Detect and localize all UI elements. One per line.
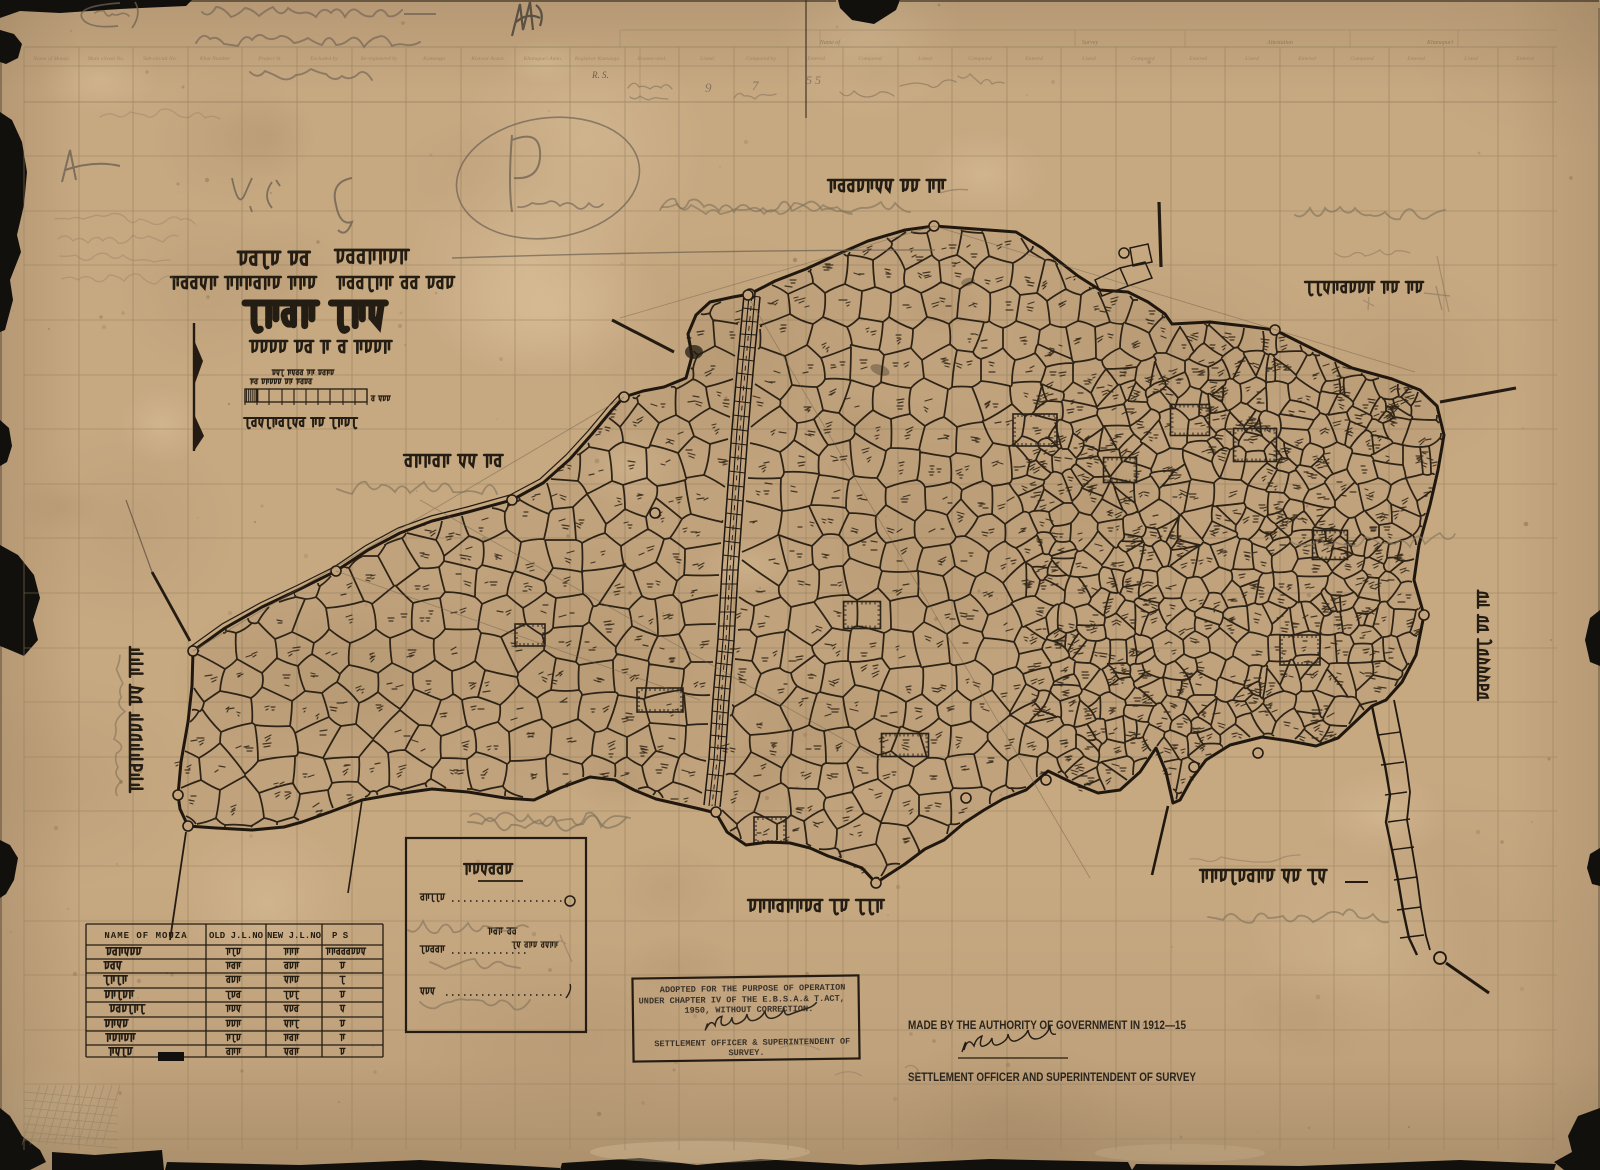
svg-text:Re-registered by: Re-registered by [360,56,398,62]
svg-text:NAME OF MOUZA: NAME OF MOUZA [104,931,187,941]
svg-text:Khanapuri: Khanapuri [1426,40,1453,46]
svg-text:Listed: Listed [1463,56,1478,62]
svg-text:Khanapuri Amin.: Khanapuri Amin. [523,56,563,62]
svg-text:SETTLEMENT OFFICER AND SUPERIN: SETTLEMENT OFFICER AND SUPERINTENDENT OF… [908,1072,1196,1084]
svg-text:Entered: Entered [1297,56,1316,62]
svg-text:Entered: Entered [1188,56,1207,62]
svg-text:SURVEY.: SURVEY. [728,1048,764,1059]
svg-text:Compared by: Compared by [746,56,777,62]
svg-text:P S: P S [332,931,349,941]
svg-text:Compared: Compared [1350,56,1374,62]
svg-text:Attestation: Attestation [1266,40,1293,46]
svg-text:Excluded by: Excluded by [309,56,338,62]
svg-text:OLD J.L.NO: OLD J.L.NO [209,931,264,941]
svg-text:Khat Number: Khat Number [199,56,231,62]
svg-text:Compared: Compared [1131,56,1155,62]
svg-text:Kistwar Assist.: Kistwar Assist. [470,56,504,62]
svg-text:Listed: Listed [699,56,714,62]
svg-text:Sub-circuit No.: Sub-circuit No. [143,56,177,62]
svg-text:Enumerated.: Enumerated. [637,56,667,62]
svg-text:Kamanga: Kamanga [422,56,445,62]
svg-text:Name of: Name of [819,39,841,46]
svg-text:Registrar Kamanga: Registrar Kamanga [574,56,619,62]
svg-text:9: 9 [705,80,712,95]
svg-text:Entered: Entered [1024,56,1043,62]
svg-text:NEW J.L.NO: NEW J.L.NO [267,931,322,941]
svg-text:7: 7 [752,78,759,93]
svg-text:5 5: 5 5 [806,73,821,87]
svg-text:Main circuit No.: Main circuit No. [87,56,125,62]
svg-text:Listed: Listed [917,56,932,62]
svg-text:R. S.: R. S. [591,70,609,80]
svg-text:Entered: Entered [1406,56,1425,62]
svg-text:Project St.: Project St. [257,56,281,62]
svg-text:Survey: Survey [1082,40,1099,46]
svg-text:Listed: Listed [1081,56,1096,62]
svg-text:Compared: Compared [858,56,882,62]
svg-text:MADE BY THE AUTHORITY OF GOVER: MADE BY THE AUTHORITY OF GOVERNMENT IN 1… [908,1018,1186,1032]
svg-text:Listed: Listed [1244,56,1259,62]
svg-text:Compared: Compared [968,56,992,62]
svg-text:Name of Mouza: Name of Mouza [32,55,69,62]
svg-text:Entered: Entered [806,56,825,62]
svg-text:1950, WITHOUT CORRECTION.: 1950, WITHOUT CORRECTION. [684,1004,813,1016]
svg-text:Entered: Entered [1515,56,1534,62]
